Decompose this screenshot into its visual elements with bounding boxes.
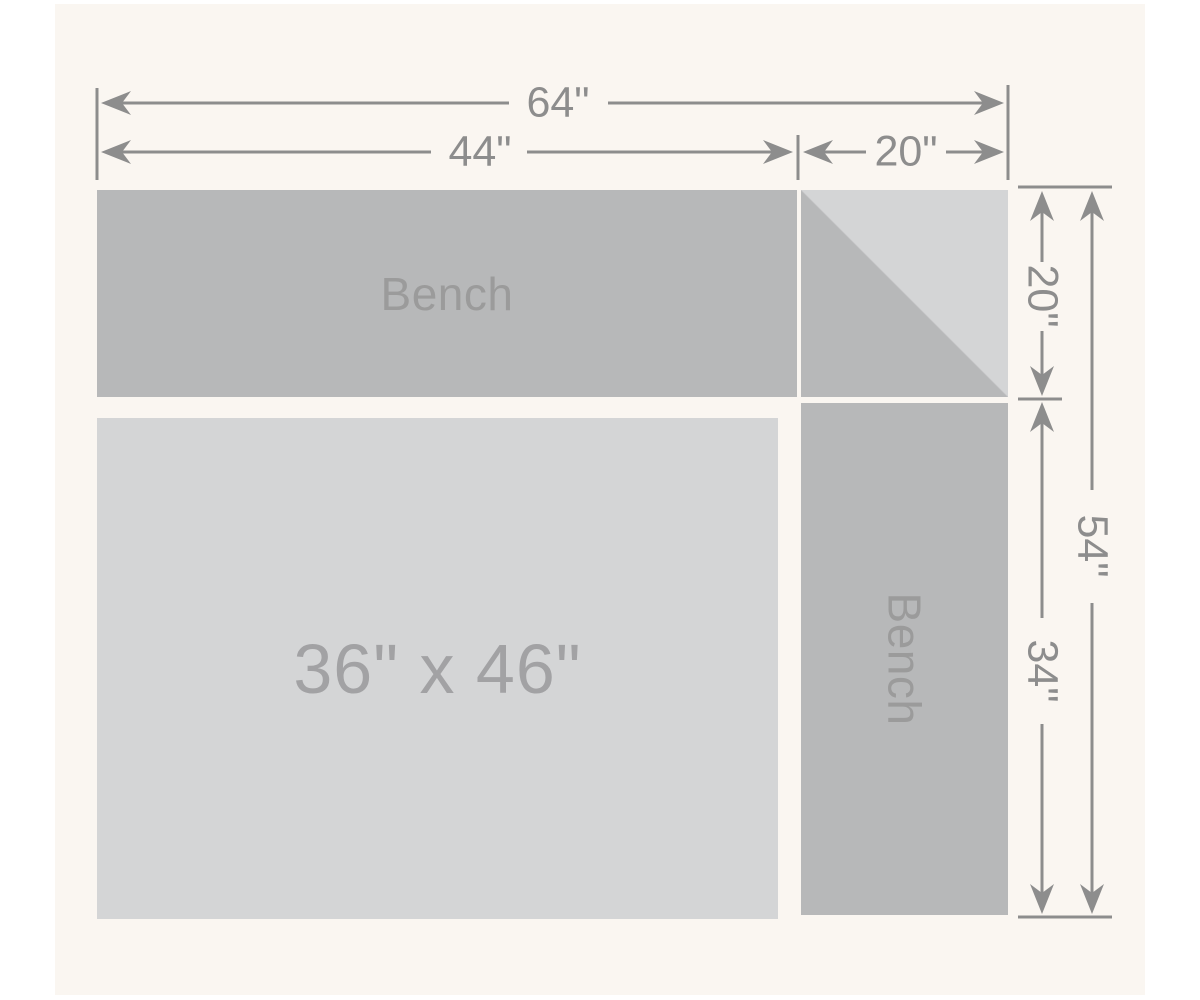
- dim-label-bench-right-height: 34": [1021, 639, 1064, 702]
- dim-label-total-height: 54": [1071, 514, 1114, 577]
- dimension-lines: [0, 0, 1200, 1000]
- dim-label-total-width: 64": [526, 82, 589, 125]
- dim-label-corner-width: 20": [874, 131, 937, 174]
- dim-label-corner-height: 20": [1021, 264, 1064, 327]
- dim-label-bench-top-width: 44": [448, 131, 511, 174]
- diagram-canvas: Bench Bench 36" x 46": [0, 0, 1200, 1000]
